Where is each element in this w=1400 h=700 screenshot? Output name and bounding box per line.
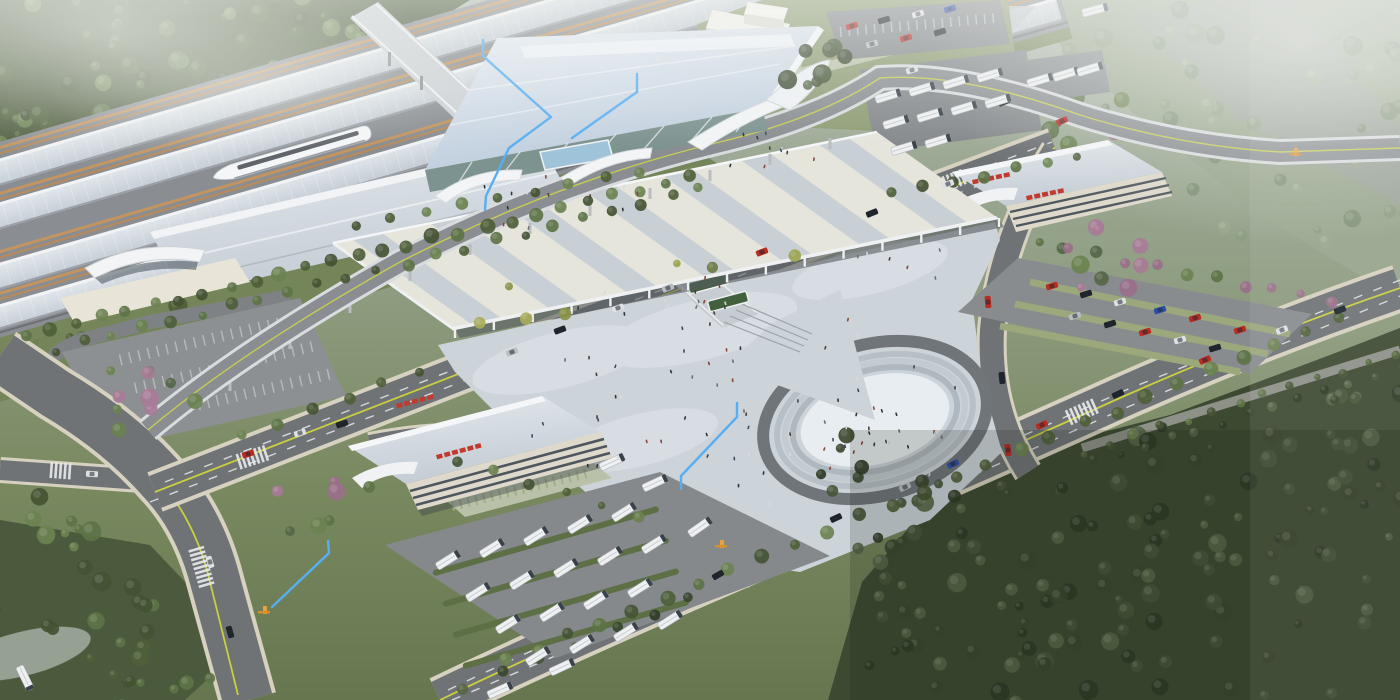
tree-highlight xyxy=(326,517,331,522)
viaduct-pier xyxy=(769,154,772,165)
tree-highlight xyxy=(1172,379,1178,385)
tree-highlight xyxy=(84,524,93,533)
tree-highlight xyxy=(67,334,71,338)
tree-highlight xyxy=(1122,281,1130,289)
tree-highlight xyxy=(404,261,409,266)
tree-highlight xyxy=(523,233,527,237)
canopy-column xyxy=(609,297,611,306)
tree-highlight xyxy=(452,230,458,236)
tree-highlight xyxy=(670,191,675,196)
tree-highlight xyxy=(114,392,120,398)
person xyxy=(531,434,533,438)
tree-highlight xyxy=(458,685,463,690)
tree-highlight xyxy=(1212,272,1217,277)
tree-highlight xyxy=(70,543,74,547)
canopy-column xyxy=(842,250,844,259)
tree-highlight xyxy=(27,513,34,520)
tree-highlight xyxy=(521,314,527,320)
tree-highlight xyxy=(354,250,360,256)
tree-highlight xyxy=(206,674,211,679)
tree-highlight xyxy=(134,651,142,659)
tree-highlight xyxy=(494,194,498,198)
tree-highlight xyxy=(79,562,86,569)
tree-highlight xyxy=(563,629,568,634)
tree-highlight xyxy=(273,487,278,492)
tree-highlight xyxy=(189,395,196,402)
tree-highlight xyxy=(72,320,77,325)
tree-highlight xyxy=(607,189,612,194)
tree-highlight xyxy=(137,642,143,648)
person xyxy=(868,426,870,430)
tree-highlight xyxy=(460,247,465,252)
tree-highlight xyxy=(674,261,677,264)
tree-highlight xyxy=(662,180,666,184)
tree-highlight xyxy=(140,600,147,607)
tree-highlight xyxy=(501,654,507,660)
tree-highlight xyxy=(90,614,98,622)
tree-highlight xyxy=(508,218,514,224)
tree-highlight xyxy=(1064,244,1069,249)
tree-highlight xyxy=(1220,422,1223,425)
tree-highlight xyxy=(253,277,258,282)
tree-highlight xyxy=(372,267,376,271)
tree-highlight xyxy=(238,431,242,435)
tree-highlight xyxy=(181,677,187,683)
tree-highlight xyxy=(174,297,179,302)
crossing-gate-arm xyxy=(715,545,727,547)
tree-highlight xyxy=(532,189,536,193)
tree-highlight xyxy=(1095,226,1099,230)
tree-highlight xyxy=(254,297,258,301)
person xyxy=(954,386,956,390)
tree-highlight xyxy=(492,233,498,239)
tree-highlight xyxy=(107,368,111,372)
person xyxy=(596,415,598,419)
tree-highlight xyxy=(273,420,279,426)
person xyxy=(683,349,685,353)
tree-highlight xyxy=(94,574,103,583)
tree-highlight xyxy=(695,580,700,585)
tree-highlight xyxy=(416,369,420,373)
tree-highlight xyxy=(167,379,172,384)
person xyxy=(709,322,711,326)
tree-highlight xyxy=(822,527,828,533)
tree-highlight xyxy=(312,519,320,527)
tree-highlight xyxy=(171,686,175,690)
tree-highlight xyxy=(663,593,670,600)
car-glass xyxy=(89,472,94,477)
viaduct-pier xyxy=(589,205,592,216)
tree-highlight xyxy=(326,255,332,261)
crossing-gate-arm xyxy=(258,611,270,613)
tree-highlight xyxy=(143,368,149,374)
tree-highlight xyxy=(313,280,317,284)
tree-highlight xyxy=(227,299,233,305)
tree-highlight xyxy=(475,319,480,324)
tree-highlight xyxy=(137,321,143,327)
tree xyxy=(112,405,121,414)
tree-highlight xyxy=(44,324,50,330)
tree-highlight xyxy=(837,445,841,449)
tree-highlight xyxy=(1074,258,1082,266)
tree-highlight xyxy=(506,283,510,287)
tree-highlight xyxy=(110,671,114,675)
person xyxy=(716,383,718,387)
tree-highlight xyxy=(432,249,437,254)
tree-highlight xyxy=(365,483,370,488)
tree-highlight xyxy=(1238,352,1245,359)
tree-highlight xyxy=(756,551,763,558)
tree-highlight xyxy=(81,336,86,341)
tree-highlight xyxy=(594,620,600,626)
tree-highlight xyxy=(143,391,151,399)
tree-highlight xyxy=(1182,270,1188,276)
tree-highlight xyxy=(152,299,157,304)
tree-highlight xyxy=(694,184,698,188)
car-glass xyxy=(1000,375,1005,380)
tree-highlight xyxy=(525,480,530,485)
tree-highlight xyxy=(918,181,924,187)
tree-highlight xyxy=(113,406,117,410)
tree-highlight xyxy=(1154,261,1159,266)
tree-highlight xyxy=(1113,409,1119,415)
car-glass xyxy=(986,299,991,304)
tree-highlight xyxy=(87,654,91,658)
tree-highlight xyxy=(548,221,554,227)
tree-highlight xyxy=(142,626,149,633)
car xyxy=(984,296,991,308)
canopy-column xyxy=(881,242,883,251)
car xyxy=(86,471,98,478)
tree-highlight xyxy=(120,307,125,312)
tree-highlight xyxy=(636,188,641,193)
tree-highlight xyxy=(401,242,407,248)
tree-highlight xyxy=(117,639,121,643)
canopy-column xyxy=(726,274,728,283)
tree-highlight xyxy=(489,466,494,471)
tree-highlight xyxy=(108,333,112,337)
tree-highlight xyxy=(1134,240,1141,247)
tree-highlight xyxy=(286,528,290,532)
viaduct-pier xyxy=(709,170,712,181)
tree-highlight xyxy=(423,208,427,212)
tree-highlight xyxy=(685,171,691,177)
tree-highlight xyxy=(482,221,489,228)
tree-highlight xyxy=(22,332,27,337)
canopy-column xyxy=(687,281,689,290)
person xyxy=(740,346,742,350)
tree-highlight xyxy=(62,530,66,534)
tree-highlight xyxy=(1242,283,1247,288)
tree-highlight xyxy=(283,288,288,293)
tree-highlight xyxy=(75,526,79,530)
canopy-column xyxy=(804,258,806,267)
tree-highlight xyxy=(43,620,49,626)
tree-highlight xyxy=(378,379,382,383)
tree-highlight xyxy=(273,268,280,275)
tree-highlight xyxy=(560,309,566,315)
tree-highlight xyxy=(330,484,338,492)
tree-highlight xyxy=(579,213,583,217)
tree-highlight xyxy=(386,214,391,219)
person xyxy=(697,438,699,442)
tree-highlight xyxy=(531,210,537,216)
tree-highlight xyxy=(1186,419,1189,422)
tree-highlight xyxy=(138,680,142,684)
canopy-column xyxy=(648,289,650,298)
tree-highlight xyxy=(1078,284,1082,288)
tree-highlight xyxy=(200,313,204,317)
person xyxy=(832,438,834,442)
tree-highlight xyxy=(39,528,47,536)
tree-highlight xyxy=(791,541,796,546)
tree-highlight xyxy=(708,263,713,268)
person xyxy=(738,484,740,488)
tree-highlight xyxy=(331,478,336,483)
person xyxy=(511,192,513,196)
tree-highlight xyxy=(308,404,314,410)
tree-highlight xyxy=(97,310,103,316)
tree-highlight xyxy=(651,611,656,616)
tree-highlight xyxy=(980,173,986,179)
tree-highlight xyxy=(564,180,569,185)
person xyxy=(857,255,859,259)
tree-highlight xyxy=(723,564,729,570)
tree-highlight xyxy=(635,513,640,518)
tree-highlight xyxy=(126,580,134,588)
tree-highlight xyxy=(302,262,307,267)
tree-highlight xyxy=(53,349,57,353)
aerial-rendering xyxy=(0,0,1400,700)
tree-highlight xyxy=(602,173,607,178)
tree-highlight xyxy=(1037,239,1041,243)
tree-highlight xyxy=(684,594,688,598)
tree-highlight xyxy=(342,275,346,279)
tree-highlight xyxy=(457,199,463,205)
tree-highlight xyxy=(1092,247,1098,253)
person xyxy=(588,356,590,360)
tree-highlight xyxy=(817,470,822,475)
tree-highlight xyxy=(346,395,351,400)
tree-highlight xyxy=(584,197,589,202)
tree-highlight xyxy=(499,667,504,672)
tree-highlight xyxy=(1206,363,1212,369)
canopy-column xyxy=(998,218,1000,227)
viaduct-pier xyxy=(649,188,652,199)
tree-highlight xyxy=(126,677,131,682)
tree-highlight xyxy=(33,490,41,498)
tree-highlight xyxy=(426,230,433,237)
tree-highlight xyxy=(198,290,203,295)
tree-highlight xyxy=(828,486,833,491)
tree-highlight xyxy=(840,429,847,436)
canopy-column xyxy=(493,321,495,330)
canopy-column xyxy=(920,234,922,243)
person xyxy=(695,290,697,294)
tree-highlight xyxy=(556,203,561,208)
car xyxy=(998,372,1005,385)
canopy-column xyxy=(765,266,767,275)
tree-highlight xyxy=(377,245,383,251)
tree-highlight xyxy=(454,458,459,463)
tree-highlight xyxy=(1121,260,1126,265)
tree-highlight xyxy=(68,517,73,522)
person xyxy=(797,399,799,403)
person xyxy=(733,457,735,461)
tree-highlight xyxy=(1081,417,1086,422)
tree-highlight xyxy=(1238,400,1242,404)
tree-highlight xyxy=(790,251,796,257)
tree-highlight xyxy=(1208,408,1212,412)
tree-highlight xyxy=(1156,422,1160,426)
tree-highlight xyxy=(1135,260,1142,267)
tree-highlight xyxy=(626,606,632,612)
tree-highlight xyxy=(353,222,357,226)
tree-highlight xyxy=(229,284,233,288)
tree-highlight xyxy=(1096,273,1103,280)
tree-highlight xyxy=(636,201,641,206)
person xyxy=(722,325,724,329)
tree-highlight xyxy=(1058,244,1063,249)
tree-highlight xyxy=(888,189,893,194)
tree-highlight xyxy=(599,503,602,506)
tree-highlight xyxy=(635,169,640,174)
person xyxy=(724,305,726,309)
tree-highlight xyxy=(564,489,568,493)
person xyxy=(545,175,547,179)
canopy-column xyxy=(959,226,961,235)
person xyxy=(564,358,566,362)
tree-highlight xyxy=(1139,391,1146,398)
rendering-canvas xyxy=(0,0,1400,700)
tree-highlight xyxy=(114,424,121,431)
tree-highlight xyxy=(614,623,619,628)
tree-highlight xyxy=(166,317,172,323)
tree-highlight xyxy=(608,207,613,212)
